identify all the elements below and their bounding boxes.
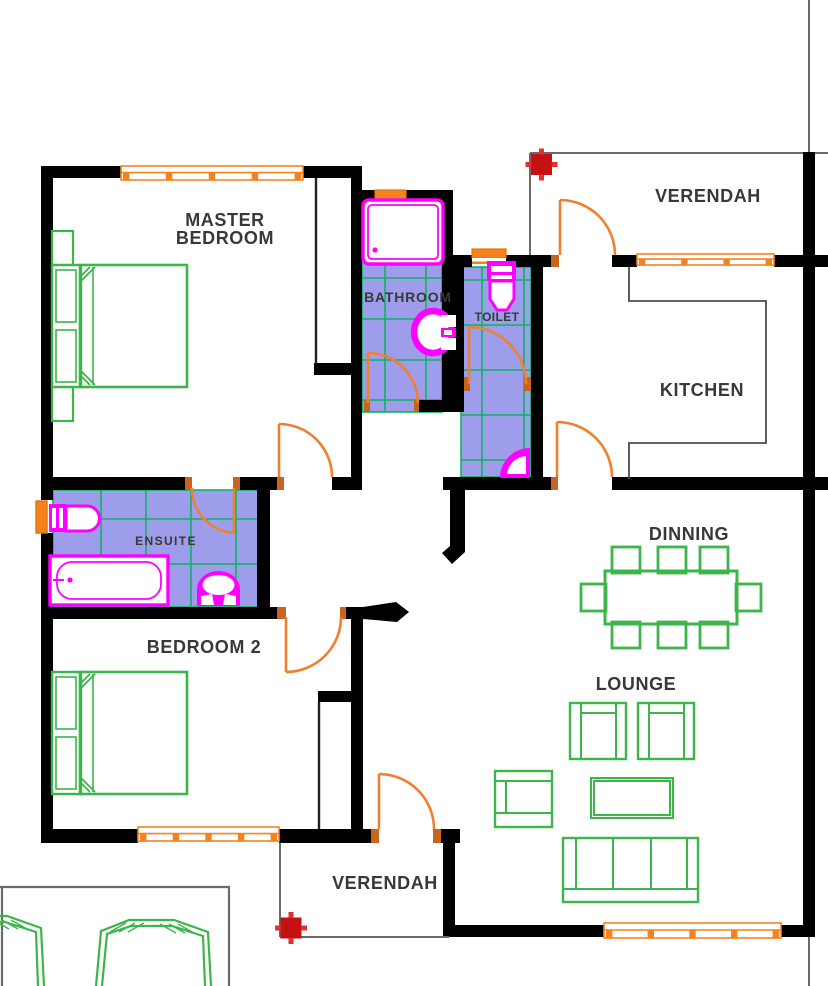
svg-text:KITCHEN: KITCHEN <box>660 380 744 400</box>
svg-text:DINNING: DINNING <box>649 524 729 544</box>
svg-text:TOILET: TOILET <box>475 310 520 324</box>
svg-text:BEDROOM: BEDROOM <box>176 228 274 248</box>
svg-text:VERENDAH: VERENDAH <box>332 873 438 893</box>
svg-text:LOUNGE: LOUNGE <box>596 674 677 694</box>
svg-text:BEDROOM 2: BEDROOM 2 <box>147 637 261 657</box>
svg-text:ENSUITE: ENSUITE <box>135 534 197 548</box>
svg-text:MASTER: MASTER <box>185 210 265 230</box>
svg-text:BATHROOM: BATHROOM <box>364 289 452 305</box>
svg-text:VERENDAH: VERENDAH <box>655 186 761 206</box>
